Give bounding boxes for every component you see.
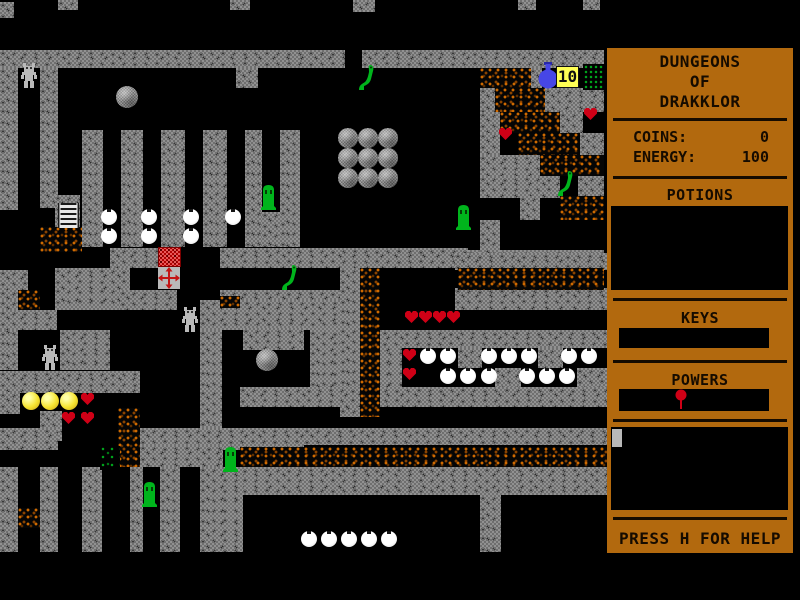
- wall-block: [480, 495, 501, 552]
- stone-sprite: [378, 148, 398, 168]
- rubble-patch: [458, 268, 604, 290]
- snake-sprite: [556, 169, 575, 196]
- game-title-line2: OF: [607, 72, 793, 92]
- wall-block: [578, 176, 604, 198]
- robot-player-sprite[interactable]: [20, 63, 38, 89]
- stone-sprite: [358, 128, 378, 148]
- white-ball-sprite: [361, 531, 377, 547]
- heart-sprite: [402, 348, 417, 361]
- wall-block: [120, 290, 177, 310]
- wall-block: [58, 0, 78, 10]
- wall-block: [583, 0, 600, 10]
- game-title-line1: DUNGEONS: [607, 52, 793, 72]
- white-ball-sprite: [225, 209, 241, 225]
- heart-sprite: [432, 310, 447, 323]
- white-ball-sprite: [460, 368, 476, 384]
- coins-value: 0: [760, 128, 769, 146]
- wall-block: [160, 467, 180, 552]
- wall-block: [40, 467, 58, 552]
- tombstone-sprite: [221, 445, 240, 472]
- divider: [613, 176, 787, 179]
- white-ball-sprite: [521, 348, 537, 364]
- white-ball-sprite: [539, 368, 555, 384]
- wall-block: [0, 270, 28, 290]
- wall-block: [82, 467, 102, 552]
- white-ball-sprite: [341, 531, 357, 547]
- white-ball-sprite: [481, 368, 497, 384]
- white-ball-sprite: [559, 368, 575, 384]
- white-ball-sprite: [561, 348, 577, 364]
- white-ball-sprite: [183, 228, 199, 244]
- wall-block: [518, 0, 536, 10]
- snake-sprite: [357, 63, 376, 90]
- wall-block: [220, 248, 468, 268]
- wall-block: [161, 130, 185, 247]
- game-title-line3: DRAKKLOR: [607, 92, 793, 112]
- ladder-sprite: [58, 203, 79, 228]
- moss-patch: [583, 64, 604, 90]
- wall-block: [0, 428, 58, 450]
- wall-block: [0, 467, 18, 552]
- wall-block: [280, 130, 300, 247]
- status-panel: DUNGEONS OF DRAKKLOR COINS: 0 ENERGY: 10…: [607, 48, 793, 553]
- stone-sprite: [338, 128, 358, 148]
- wall-block: [580, 133, 604, 155]
- game-screen: 10 DUNGEONS OF DRAKKLOR COINS: 0 ENERGY:…: [0, 0, 800, 600]
- powers-label: POWERS: [607, 371, 793, 389]
- heart-sprite: [446, 310, 461, 323]
- rubble-patch: [18, 290, 40, 310]
- heart-sprite: [80, 411, 95, 424]
- wall-block: [538, 348, 563, 368]
- robot-sprite: [41, 345, 59, 371]
- wall-block: [40, 68, 58, 208]
- coins-row: COINS: 0: [633, 128, 769, 146]
- coin-sprite: [60, 392, 78, 410]
- rubble-patch: [495, 88, 545, 112]
- wall-block: [0, 371, 140, 393]
- heart-sprite: [404, 310, 419, 323]
- wall-block: [110, 248, 160, 268]
- wall-block: [0, 50, 345, 68]
- message-cursor: [612, 429, 622, 447]
- potions-label: POTIONS: [607, 186, 793, 204]
- wall-block: [55, 268, 130, 310]
- wall-block: [220, 467, 608, 495]
- wall-block: [236, 68, 258, 88]
- heart-sprite: [498, 127, 513, 140]
- wall-block: [520, 196, 540, 220]
- wall-block: [243, 328, 304, 350]
- wall-block: [203, 130, 227, 247]
- divider: [613, 298, 787, 301]
- wall-block: [480, 155, 540, 176]
- coin-sprite: [41, 392, 59, 410]
- rubble-patch: [220, 296, 240, 308]
- snake-sprite: [280, 263, 299, 290]
- energy-label: ENERGY:: [633, 148, 696, 166]
- rubble-patch: [360, 268, 380, 417]
- rubble-patch: [560, 196, 604, 220]
- divider: [613, 419, 787, 422]
- wall-block: [240, 387, 608, 407]
- rubble-patch: [18, 508, 40, 528]
- wall-block: [353, 0, 375, 12]
- white-ball-sprite: [141, 209, 157, 225]
- wall-block: [230, 0, 250, 10]
- white-ball-sprite: [481, 348, 497, 364]
- stone-sprite: [378, 168, 398, 188]
- rubble-patch: [240, 447, 608, 467]
- stone-sprite: [338, 168, 358, 188]
- heart-sprite: [80, 392, 95, 405]
- white-ball-sprite: [301, 531, 317, 547]
- powers-inventory-box: [619, 389, 769, 411]
- white-ball-sprite: [581, 348, 597, 364]
- rubble-patch: [40, 227, 82, 252]
- white-ball-sprite: [101, 209, 117, 225]
- wall-block: [262, 212, 280, 247]
- chest-sprite: [158, 247, 181, 267]
- moss-patch: [100, 446, 120, 470]
- rubble-patch: [480, 68, 531, 88]
- wall-block: [480, 220, 500, 253]
- potions-inventory-box: [611, 206, 788, 290]
- stone-sprite: [338, 148, 358, 168]
- divider: [613, 517, 787, 520]
- stone-sprite: [378, 128, 398, 148]
- gray-ball-sprite: [256, 349, 278, 371]
- rubble-patch: [118, 408, 140, 467]
- tombstone-sprite: [454, 203, 473, 230]
- wall-block: [458, 348, 482, 368]
- wall-block: [480, 133, 500, 155]
- white-ball-sprite: [101, 228, 117, 244]
- white-ball-sprite: [141, 228, 157, 244]
- divider: [613, 118, 787, 121]
- wall-block: [560, 112, 583, 133]
- wall-block: [0, 68, 18, 210]
- keys-label: KEYS: [607, 309, 793, 327]
- robot-sprite: [181, 307, 199, 333]
- wall-block: [480, 112, 500, 133]
- coins-label: COINS:: [633, 128, 687, 146]
- wall-block: [455, 288, 608, 310]
- help-text: PRESS H FOR HELP: [607, 529, 793, 548]
- power-pin-icon: [675, 389, 687, 414]
- white-ball-sprite: [381, 531, 397, 547]
- heart-sprite: [402, 367, 417, 380]
- heart-sprite: [583, 107, 598, 120]
- tombstone-sprite: [140, 480, 159, 507]
- energy-row: ENERGY: 100: [633, 148, 769, 166]
- message-box: [611, 427, 788, 510]
- wall-block: [0, 2, 14, 18]
- wall-block: [140, 445, 223, 467]
- divider: [613, 360, 787, 363]
- white-ball-sprite: [519, 368, 535, 384]
- white-ball-sprite: [321, 531, 337, 547]
- wall-block: [0, 310, 57, 330]
- wall-block: [82, 130, 103, 247]
- badge10-sprite: 10: [556, 66, 579, 88]
- stone-sprite: [358, 148, 378, 168]
- cross-sprite: [158, 267, 180, 289]
- coin-sprite: [22, 392, 40, 410]
- white-ball-sprite: [440, 348, 456, 364]
- wall-block: [304, 428, 608, 445]
- keys-inventory-box: [619, 328, 769, 348]
- wall-block: [480, 176, 560, 198]
- gray-ball-sprite: [116, 86, 138, 108]
- white-ball-sprite: [420, 348, 436, 364]
- heart-sprite: [418, 310, 433, 323]
- wall-block: [60, 330, 110, 370]
- white-ball-sprite: [183, 209, 199, 225]
- wall-block: [121, 130, 143, 247]
- white-ball-sprite: [440, 368, 456, 384]
- stone-sprite: [358, 168, 378, 188]
- wall-block: [480, 88, 495, 112]
- rubble-patch: [518, 133, 580, 155]
- wall-block: [200, 467, 243, 552]
- heart-sprite: [61, 411, 76, 424]
- dungeon-map[interactable]: 10: [0, 0, 604, 600]
- tombstone-sprite: [259, 183, 278, 210]
- wall-block: [0, 392, 20, 414]
- white-ball-sprite: [501, 348, 517, 364]
- energy-value: 100: [742, 148, 769, 166]
